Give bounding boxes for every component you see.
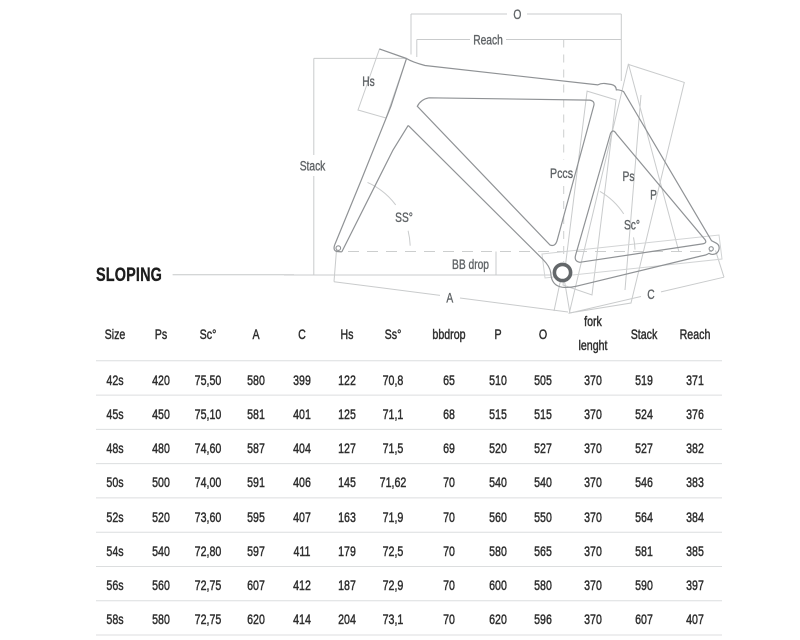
svg-text:Pccs: Pccs [550,166,573,182]
svg-text:Ps: Ps [623,168,635,184]
svg-text:Sc°: Sc° [624,217,640,233]
svg-text:BB drop: BB drop [452,257,489,273]
svg-text:SS°: SS° [395,209,413,225]
svg-text:C: C [647,286,655,302]
svg-text:O: O [513,7,521,23]
svg-text:Reach: Reach [473,32,503,48]
svg-text:Stack: Stack [300,158,326,174]
svg-text:A: A [446,290,453,306]
svg-text:P: P [650,187,657,203]
svg-text:Hs: Hs [362,73,375,89]
